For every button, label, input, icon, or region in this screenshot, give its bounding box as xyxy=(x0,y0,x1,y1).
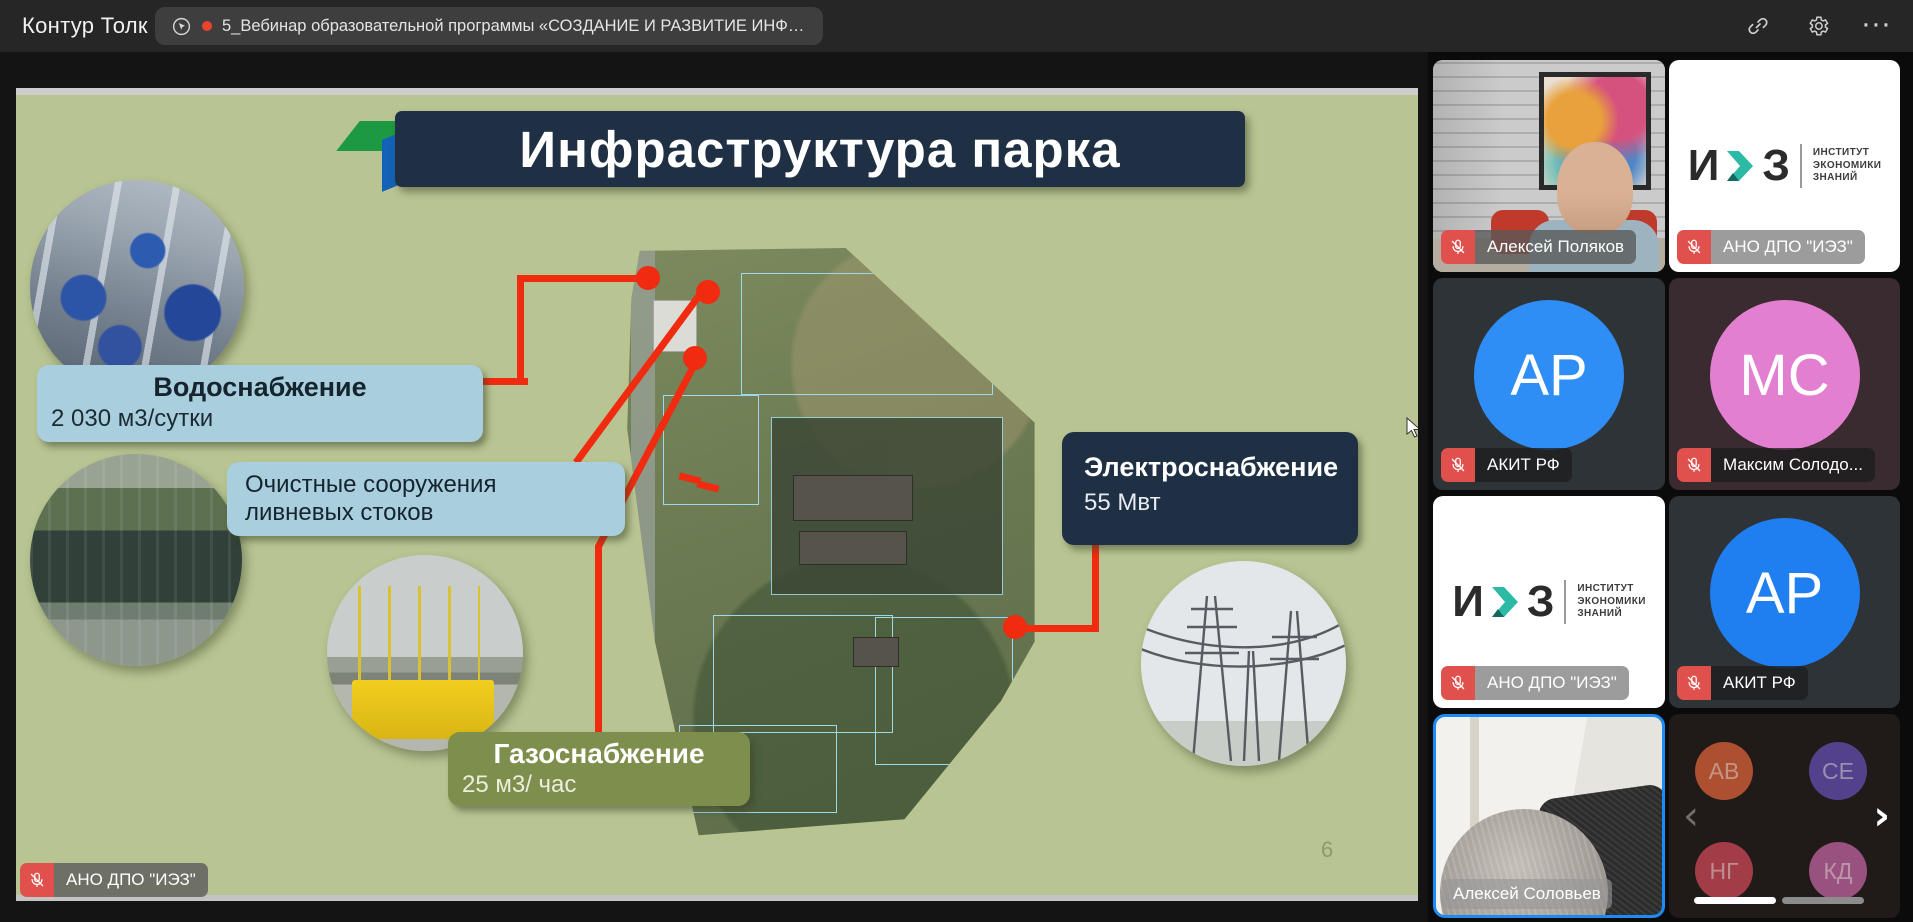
participant-tile-polyakov[interactable]: Алексей Поляков xyxy=(1433,60,1665,272)
participant-tiles-grid: Алексей Поляков И З ИНСТИТУТ ЭКОНОМИКИ xyxy=(1433,60,1900,918)
participant-name: АКИТ РФ xyxy=(1475,448,1572,482)
gas-title: Газоснабжение xyxy=(448,738,750,770)
mic-muted-icon xyxy=(1677,666,1711,700)
avatar: АР xyxy=(1474,300,1624,450)
gear-icon xyxy=(1806,14,1830,38)
pylon-art xyxy=(1141,561,1346,766)
mini-avatar: КД xyxy=(1809,842,1867,900)
participant-badge: Максим Солодо... xyxy=(1677,448,1875,482)
copy-link-button[interactable] xyxy=(1745,13,1771,39)
app-window: Контур Толк 5_Вебинар образовательной пр… xyxy=(0,0,1913,922)
iez-letter: И xyxy=(1688,141,1719,191)
participant-badge: Алексей Поляков xyxy=(1441,230,1636,264)
share-window-edge-bottom xyxy=(16,895,1418,901)
presentation-slide: Инфраструктура парка xyxy=(16,95,1418,895)
mic-muted-icon xyxy=(1441,230,1475,264)
participant-badge: АНО ДПО "ИЭЗ" xyxy=(1677,230,1865,264)
link-icon xyxy=(1746,14,1770,38)
meeting-title-pill[interactable]: 5_Вебинар образовательной программы «СОЗ… xyxy=(155,7,823,45)
map-marker-dot xyxy=(636,266,660,290)
presenter-name: АНО ДПО "ИЭЗ" xyxy=(54,863,208,897)
screenshare-indicator-icon xyxy=(171,16,192,37)
iez-letter: З xyxy=(1762,141,1789,191)
iez-chevron-icon xyxy=(1492,587,1518,617)
participant-name: Алексей Поляков xyxy=(1475,230,1636,264)
mini-avatar: НГ xyxy=(1695,842,1753,900)
water-value: 2 030 м3/сутки xyxy=(51,405,483,433)
mic-muted-icon xyxy=(1677,230,1711,264)
connector-water-vert xyxy=(517,275,524,385)
presenter-badge: АНО ДПО "ИЭЗ" xyxy=(20,863,208,897)
participant-tile-solovyov[interactable]: Алексей Соловьев xyxy=(1433,714,1665,918)
iez-caption: ИНСТИТУТ ЭКОНОМИКИ ЗНАНИЙ xyxy=(1577,583,1645,621)
label-electric-supply: Электроснабжение 55 Мвт xyxy=(1062,432,1358,545)
overflow-participants-tile[interactable]: АВ СЕ НГ КД ‹ › xyxy=(1669,714,1900,918)
slide-title: Инфраструктура парка xyxy=(519,120,1120,179)
iez-letter: И xyxy=(1452,577,1483,627)
mouse-cursor xyxy=(1406,417,1418,439)
ellipsis-icon: ··· xyxy=(1863,21,1893,31)
participants-sidebar: Алексей Поляков И З ИНСТИТУТ ЭКОНОМИКИ xyxy=(1428,52,1913,922)
recording-dot-icon xyxy=(202,21,212,31)
connector-electric-vert xyxy=(1092,544,1099,631)
photo-gas-station xyxy=(327,555,523,751)
participant-tile-iez-2[interactable]: И З ИНСТИТУТ ЭКОНОМИКИ ЗНАНИЙ xyxy=(1433,496,1665,708)
participant-tile-iez-1[interactable]: И З ИНСТИТУТ ЭКОНОМИКИ ЗНАНИЙ xyxy=(1669,60,1900,272)
prev-page-button[interactable]: ‹ xyxy=(1683,796,1699,836)
slide-title-bar: Инфраструктура парка xyxy=(395,111,1245,187)
gas-station-posts xyxy=(358,586,480,680)
pagination-indicator[interactable] xyxy=(1782,897,1864,904)
participant-name: АНО ДПО "ИЭЗ" xyxy=(1711,230,1865,264)
gas-value: 25 м3/ час xyxy=(462,771,750,799)
topbar: Контур Толк 5_Вебинар образовательной пр… xyxy=(0,0,1913,52)
mic-muted-icon xyxy=(1441,448,1475,482)
gas-station-building xyxy=(352,680,493,739)
participant-name: АКИТ РФ xyxy=(1711,666,1808,700)
iez-caption: ИНСТИТУТ ЭКОНОМИКИ ЗНАНИЙ xyxy=(1813,147,1881,185)
map-marker-dot xyxy=(683,346,707,370)
mic-muted-icon xyxy=(1441,666,1475,700)
participant-name: АНО ДПО "ИЭЗ" xyxy=(1475,666,1629,700)
shared-screen-stage: Инфраструктура парка xyxy=(0,52,1428,922)
mini-avatar: АВ xyxy=(1695,742,1753,800)
treatment-line1: Очистные сооружения xyxy=(245,471,625,499)
avatar: МС xyxy=(1710,300,1860,450)
avatar: АР xyxy=(1710,518,1860,668)
label-treatment: Очистные сооружения ливневых стоков xyxy=(227,462,625,536)
iez-letter: З xyxy=(1527,577,1554,627)
mic-muted-icon xyxy=(20,863,54,897)
participant-name: Алексей Соловьев xyxy=(1442,879,1612,909)
participant-tile-akit-1[interactable]: АР АКИТ РФ xyxy=(1433,278,1665,490)
next-page-button[interactable]: › xyxy=(1874,796,1890,836)
photo-power-pylons xyxy=(1141,561,1346,766)
participant-badge: АНО ДПО "ИЭЗ" xyxy=(1441,666,1629,700)
more-button[interactable]: ··· xyxy=(1865,13,1891,39)
mic-muted-icon xyxy=(1677,448,1711,482)
water-title: Водоснабжение xyxy=(37,372,483,403)
map-marker-dot xyxy=(696,280,720,304)
iez-divider xyxy=(1800,144,1802,188)
participant-name: Максим Солодо... xyxy=(1711,448,1875,482)
pagination-indicator-active[interactable] xyxy=(1694,897,1776,904)
settings-button[interactable] xyxy=(1805,13,1831,39)
participant-tile-akit-2[interactable]: АР АКИТ РФ xyxy=(1669,496,1900,708)
slide-page-number: 6 xyxy=(1321,837,1333,863)
person-head xyxy=(1557,142,1633,234)
treatment-line2: ливневых стоков xyxy=(245,499,625,527)
photo-water-pumps xyxy=(30,180,244,394)
meeting-title: 5_Вебинар образовательной программы «СОЗ… xyxy=(222,17,807,36)
iez-divider xyxy=(1564,580,1566,624)
app-logo: Контур Толк xyxy=(22,13,148,39)
mini-avatar: СЕ xyxy=(1809,742,1867,800)
connector-water-top xyxy=(517,275,655,282)
connector-gas-vert xyxy=(595,545,602,733)
electric-value: 55 Мвт xyxy=(1084,489,1358,517)
label-water-supply: Водоснабжение 2 030 м3/сутки xyxy=(37,365,483,442)
label-gas-supply: Газоснабжение 25 м3/ час xyxy=(448,732,750,806)
participant-tile-maxim[interactable]: МС Максим Солодо... xyxy=(1669,278,1900,490)
share-window-edge-top xyxy=(16,88,1418,95)
iez-chevron-icon xyxy=(1727,151,1753,181)
participant-badge: АКИТ РФ xyxy=(1441,448,1572,482)
participant-badge: АКИТ РФ xyxy=(1677,666,1808,700)
electric-title: Электроснабжение xyxy=(1084,452,1358,483)
map-marker-dot xyxy=(1003,615,1027,639)
photo-treatment-plant xyxy=(30,454,242,666)
